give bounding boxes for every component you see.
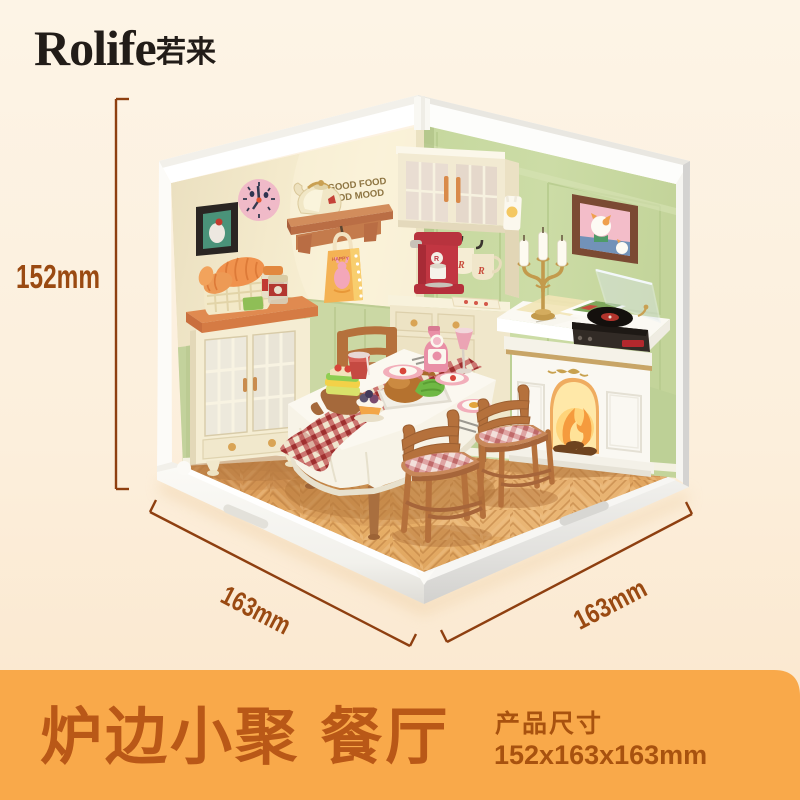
svg-text:HAPPY: HAPPY [332,256,350,263]
svg-text:炉边小聚 餐厅: 炉边小聚 餐厅 [40,703,450,772]
svg-text:152x163x163mm: 152x163x163mm [494,740,707,770]
svg-text:Rolife: Rolife [34,20,156,76]
svg-text:R: R [434,256,439,263]
svg-text:产品尺寸: 产品尺寸 [495,710,603,738]
svg-text:R: R [477,266,485,277]
svg-text:R: R [457,260,465,271]
svg-text:152mm: 152mm [16,258,100,295]
svg-text:若来: 若来 [156,36,216,69]
